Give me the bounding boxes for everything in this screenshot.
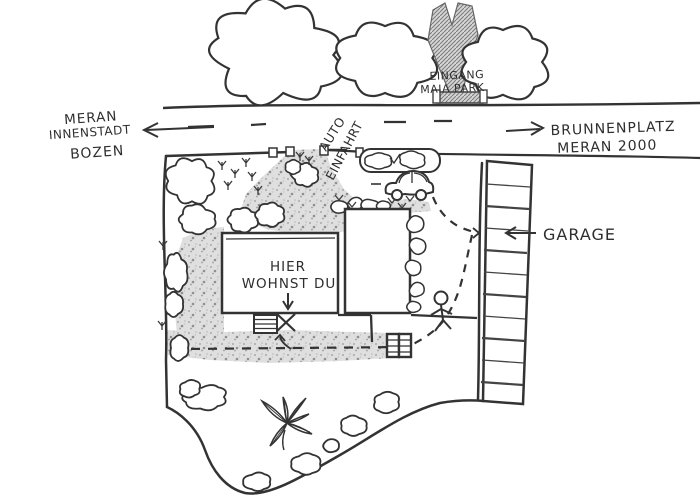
bush-icon	[323, 439, 339, 452]
bush-icon	[170, 335, 188, 361]
bush-icon	[341, 416, 367, 436]
bush-icon	[285, 160, 300, 175]
bush-icon	[255, 202, 284, 227]
garden-gate-icon	[387, 334, 411, 357]
entrance-steps-icon	[254, 315, 277, 333]
outbuilding-outline	[345, 209, 410, 313]
park-entrance-label: EINGANG MAIA PARK	[420, 68, 485, 96]
bush-icon	[243, 472, 270, 491]
sketch-map: EINGANG MAIA PARK MERAN INNENSTADT BOZEN…	[0, 0, 700, 500]
fence-post-icon	[269, 148, 277, 157]
bush-icon	[400, 151, 425, 169]
bottom-path-area	[166, 330, 391, 363]
bush-icon	[374, 392, 399, 413]
garage-label: GARAGE	[543, 225, 616, 244]
bush-icon	[407, 301, 421, 312]
park-label-line2: MAIA PARK	[420, 81, 485, 96]
main-house: HIER WOHNST DU	[222, 233, 338, 313]
bush-icon	[291, 453, 320, 475]
garage-outline	[483, 161, 532, 404]
roadside-hedge	[360, 149, 440, 172]
bush-icon	[165, 292, 183, 317]
house-label-line1: HIER	[270, 259, 306, 275]
second-building	[345, 209, 410, 313]
bush-icon	[365, 153, 392, 169]
bush-icon	[180, 380, 200, 398]
garage-building	[481, 161, 532, 404]
fence-post-icon	[286, 147, 294, 156]
bush-icon	[405, 260, 420, 275]
house-label-line2: WOHNST DU	[242, 276, 337, 292]
